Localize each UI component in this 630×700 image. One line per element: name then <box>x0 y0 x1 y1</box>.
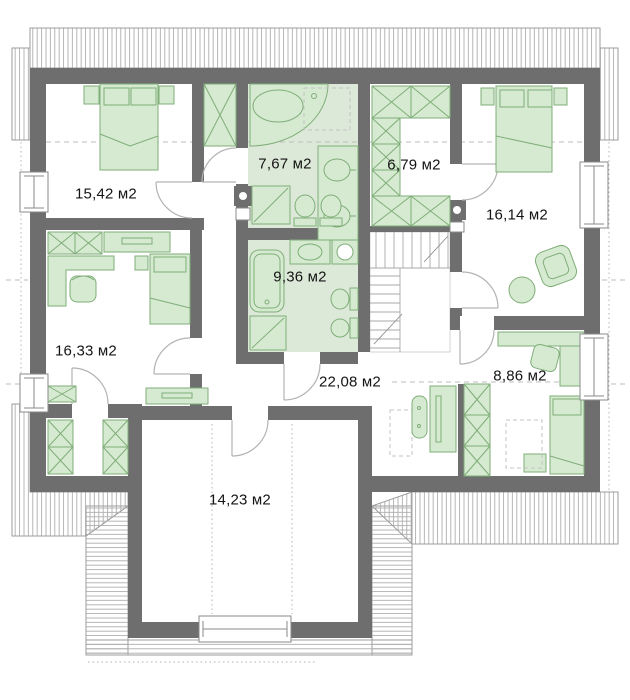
pillow <box>104 88 129 105</box>
roof-strip-porch-west <box>86 506 128 655</box>
wall-bed2-bottom-b <box>108 404 142 418</box>
nightstand <box>135 256 148 270</box>
room-label-bedroom-top-right: 16,14 м2 <box>486 207 548 224</box>
pillow <box>131 88 156 105</box>
nightstand <box>481 88 494 105</box>
pillow <box>553 399 581 415</box>
toilet-1-bowl <box>295 195 315 217</box>
wall-wardrobe-right-c <box>450 308 462 316</box>
pillow <box>154 257 186 272</box>
wall-porch-bottom-b <box>291 622 372 638</box>
room-label-hall: 22,08 м2 <box>319 374 381 391</box>
toilet-2-tank <box>350 288 358 310</box>
bidet-1-tank <box>320 218 342 226</box>
bidet-1-bowl <box>321 195 341 217</box>
wall-ext-right <box>584 68 600 492</box>
wall-wardrobe-right-a <box>450 84 462 164</box>
hall-bench <box>412 396 427 438</box>
room-label-wardrobe-room: 6,79 м2 <box>387 157 440 174</box>
wall-bed3-bottom-a <box>450 316 460 330</box>
nightstand <box>524 454 546 472</box>
wall-bed1-bed2-divider <box>30 218 204 230</box>
roof-strip-right <box>600 48 618 140</box>
wall-ext-left <box>30 68 46 492</box>
wall-bath2-bottom-b <box>320 352 358 364</box>
room-label-bathroom-top: 7,67 м2 <box>258 156 311 173</box>
wall-porch-bottom-a <box>128 622 203 638</box>
toilet-1-tank <box>294 218 316 226</box>
room-label-bathroom-middle: 9,36 м2 <box>273 269 326 286</box>
stairwell <box>370 232 450 352</box>
wall-bath2-bottom-a <box>236 352 284 364</box>
wall-ext-bottom-left <box>30 476 142 492</box>
washing-machine-drum <box>337 244 353 260</box>
desk-chair <box>70 276 96 302</box>
toilet-2-bowl <box>331 289 349 309</box>
bidet-2-tank <box>350 318 358 338</box>
vent-shaft-1-dot <box>239 192 247 200</box>
vent-shaft-2-flue <box>450 222 464 232</box>
room-label-bedroom-left: 16,33 м2 <box>55 343 117 360</box>
desk-top-right <box>498 332 584 346</box>
pillow <box>528 90 552 107</box>
wall-porch-right <box>358 406 372 638</box>
dresser <box>104 232 170 252</box>
tv-cabinet <box>430 386 456 452</box>
wall-hall-porch-a <box>142 406 232 420</box>
stairs <box>370 232 450 352</box>
roof-strip-left <box>12 48 30 140</box>
wall-bed1-right-a <box>192 84 204 182</box>
wall-bed4-left-thin <box>458 384 464 476</box>
wall-porch-left <box>128 406 142 638</box>
vent-shaft-1-flue <box>236 208 250 220</box>
room-label-bedroom-top-left: 15,42 м2 <box>75 186 137 203</box>
wall-stair-top <box>370 226 450 232</box>
wall-bed3-bottom-b <box>494 316 600 330</box>
room-label-bedroom-bottom-right: 8,86 м2 <box>493 368 546 385</box>
wall-ext-top <box>30 68 600 84</box>
vent-shaft-2-dot <box>453 206 461 214</box>
bidet-2-bowl <box>331 319 349 337</box>
wall-bath-right <box>358 84 370 352</box>
hall-dresser <box>146 388 208 404</box>
roof-band-bottom-right <box>412 492 618 544</box>
wall-bath2-left <box>236 240 248 352</box>
pillow <box>500 90 524 107</box>
nightstand <box>159 86 174 104</box>
wall-hall-porch-b <box>268 406 358 420</box>
floor-plan: 15,42 м2 7,67 м2 6,79 м2 16,14 м2 9,36 м… <box>0 0 630 700</box>
roof-band-top <box>30 28 600 68</box>
wall-ext-bottom-right <box>358 476 600 492</box>
room-label-room-bottom: 14,23 м2 <box>209 492 271 509</box>
nightstand <box>84 86 99 104</box>
nightstand <box>554 88 567 105</box>
wall-bath1-left-a <box>236 84 248 148</box>
porch-room-floor <box>128 406 372 638</box>
round-table <box>509 277 535 303</box>
wall-bed2-right-a <box>190 230 202 338</box>
